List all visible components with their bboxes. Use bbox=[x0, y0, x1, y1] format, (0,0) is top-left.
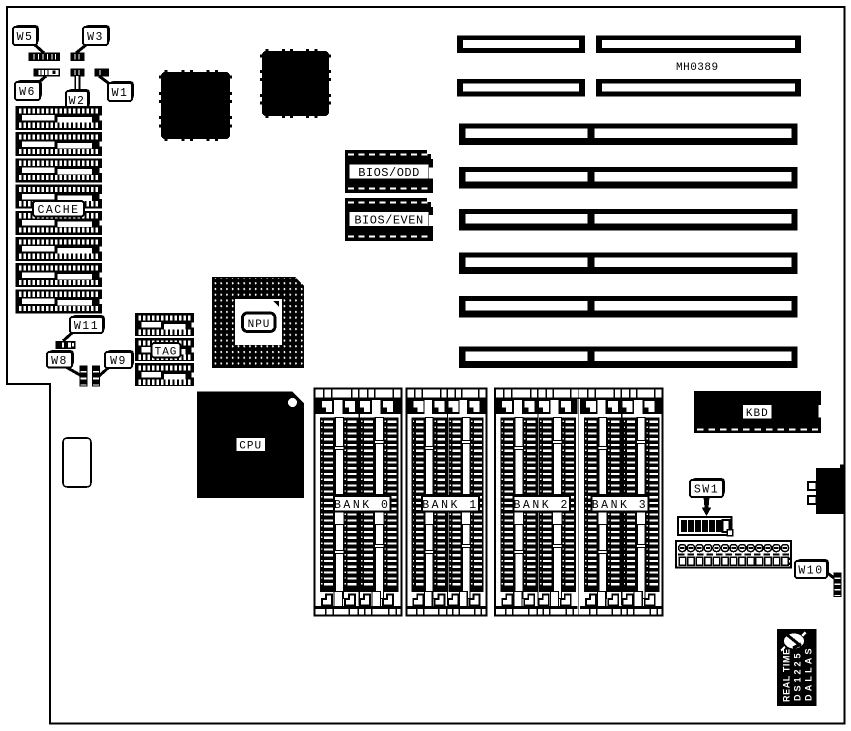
svg-text:TAG: TAG bbox=[155, 347, 178, 359]
svg-text:BIOS/EVEN: BIOS/EVEN bbox=[354, 214, 423, 228]
svg-text:W6: W6 bbox=[19, 86, 36, 99]
svg-text:W8: W8 bbox=[51, 355, 68, 368]
svg-text:REAL TIME: REAL TIME bbox=[782, 648, 792, 702]
svg-text:W11: W11 bbox=[74, 320, 99, 333]
svg-text:W9: W9 bbox=[110, 355, 127, 368]
svg-text:NPU: NPU bbox=[248, 319, 271, 331]
svg-text:CPU: CPU bbox=[239, 441, 262, 453]
svg-text:W10: W10 bbox=[798, 565, 823, 578]
svg-text:BANK 3: BANK 3 bbox=[592, 499, 648, 512]
svg-text:BIOS/ODD: BIOS/ODD bbox=[358, 166, 420, 180]
svg-text:KBD: KBD bbox=[746, 408, 769, 420]
svg-text:MH0389: MH0389 bbox=[676, 62, 719, 74]
svg-text:SW1: SW1 bbox=[694, 484, 719, 497]
svg-text:CACHE: CACHE bbox=[37, 204, 79, 217]
svg-text:BANK 0: BANK 0 bbox=[334, 499, 390, 512]
svg-text:DALLAS: DALLAS bbox=[804, 645, 814, 701]
svg-text:DS1225: DS1225 bbox=[793, 650, 803, 701]
svg-text:BANK 2: BANK 2 bbox=[514, 499, 570, 512]
svg-text:W5: W5 bbox=[17, 31, 34, 44]
svg-text:W3: W3 bbox=[87, 31, 104, 44]
svg-text:W1: W1 bbox=[112, 87, 129, 100]
svg-text:BANK 1: BANK 1 bbox=[422, 499, 478, 512]
